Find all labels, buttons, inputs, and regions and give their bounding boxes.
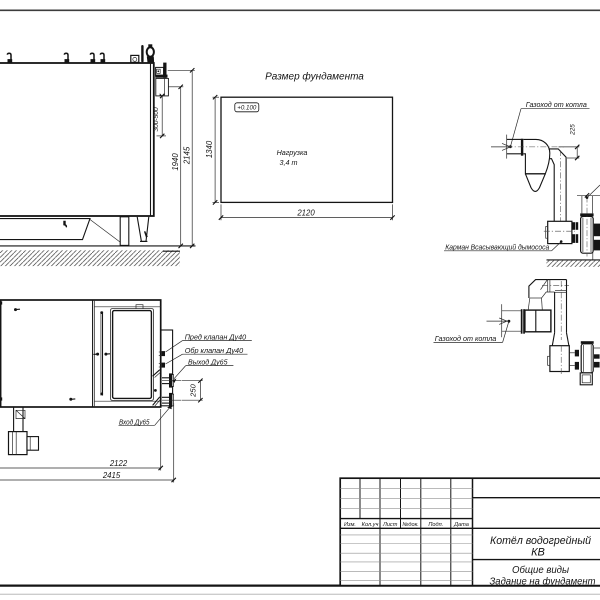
svg-text:Газоход от котла: Газоход от котла — [526, 100, 587, 109]
svg-text:300-500: 300-500 — [153, 107, 160, 132]
svg-text:3,4 т: 3,4 т — [280, 158, 298, 167]
svg-text:2120: 2120 — [296, 209, 315, 218]
svg-text:КВ: КВ — [531, 546, 545, 558]
svg-text:1940: 1940 — [171, 153, 180, 171]
svg-text:+0.100: +0.100 — [237, 105, 257, 112]
svg-text:Задание на фундамент: Задание на фундамент — [490, 575, 596, 587]
svg-text:Кол.уч: Кол.уч — [362, 522, 379, 528]
svg-text:2145: 2145 — [182, 146, 191, 165]
svg-text:Размер фундамента: Размер фундамента — [265, 71, 364, 83]
svg-text:Котёл водогрейный: Котёл водогрейный — [490, 535, 591, 547]
svg-text:Лист: Лист — [382, 522, 398, 528]
svg-text:Пред клапан Ду40: Пред клапан Ду40 — [185, 332, 247, 341]
svg-text:Нагрузка: Нагрузка — [277, 148, 308, 157]
svg-text:2415: 2415 — [102, 471, 121, 480]
svg-text:№док.: №док. — [402, 522, 418, 528]
svg-text:Подп.: Подп. — [428, 522, 443, 528]
svg-text:Дата: Дата — [453, 522, 469, 528]
svg-text:225: 225 — [570, 124, 577, 136]
svg-text:Общие виды: Общие виды — [512, 564, 569, 576]
svg-text:Изм.: Изм. — [344, 522, 356, 528]
svg-text:2122: 2122 — [109, 459, 128, 468]
svg-text:Карман Всасывающий дымососа: Карман Всасывающий дымососа — [445, 243, 549, 252]
svg-text:1340: 1340 — [205, 140, 214, 158]
svg-text:Обр клапан Ду40: Обр клапан Ду40 — [185, 346, 244, 355]
svg-text:Выход Ду65: Выход Ду65 — [188, 357, 228, 366]
svg-text:Газоход от котла: Газоход от котла — [435, 334, 497, 343]
svg-text:250: 250 — [189, 383, 198, 397]
